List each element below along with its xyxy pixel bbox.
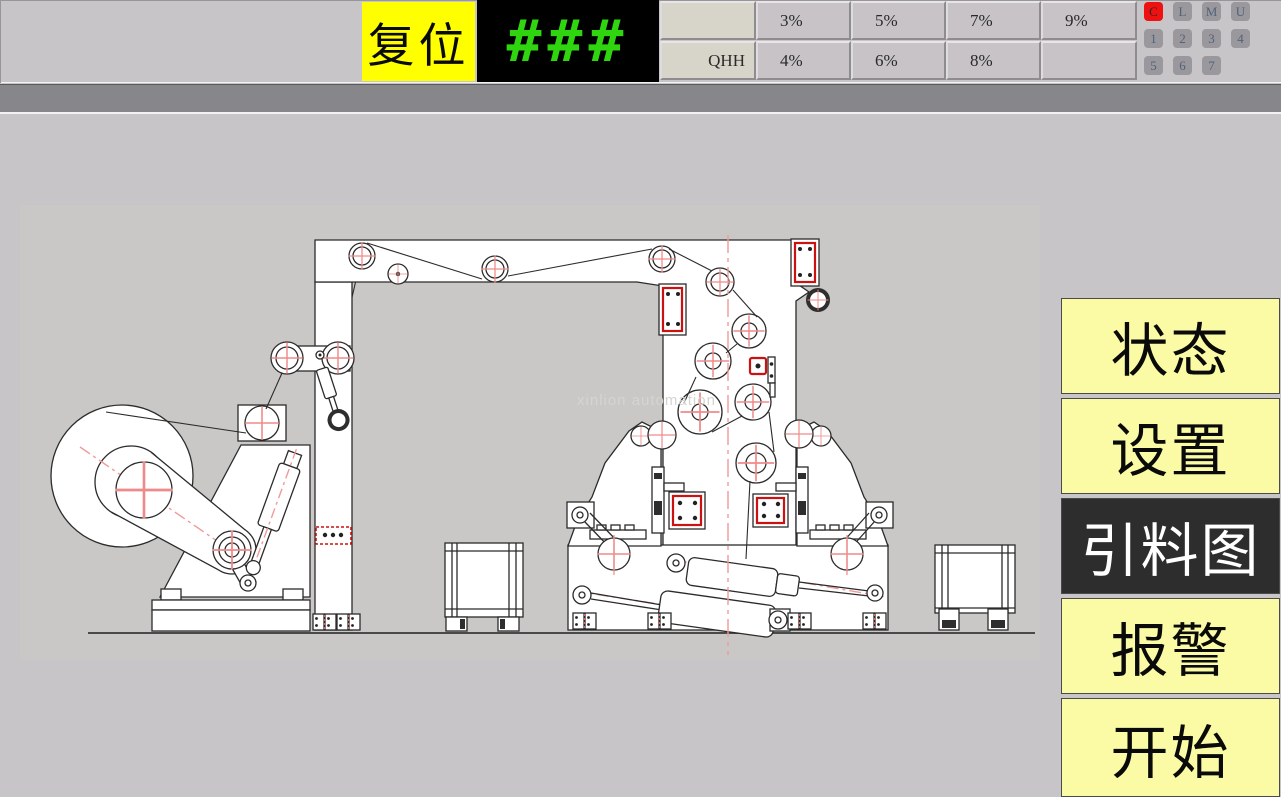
watermark-text: xinlion automation bbox=[577, 392, 716, 409]
grid-cell-9pct[interactable]: 9% bbox=[1041, 1, 1137, 40]
key-u[interactable]: U bbox=[1231, 2, 1250, 21]
grid-cell-qhh[interactable]: QHH bbox=[660, 41, 756, 80]
frame-column bbox=[313, 282, 360, 630]
value-display: ### bbox=[477, 0, 659, 82]
menu-item-start[interactable]: 开始 bbox=[1061, 698, 1280, 797]
key-c[interactable]: C bbox=[1144, 2, 1163, 21]
key-6[interactable]: 6 bbox=[1173, 56, 1192, 75]
grid-cell-8pct[interactable]: 8% bbox=[946, 41, 1041, 80]
top-beam-tower bbox=[315, 240, 809, 546]
menu-item-material-diagram[interactable]: 引料图 bbox=[1061, 498, 1280, 594]
key-l[interactable]: L bbox=[1173, 2, 1192, 21]
pallet-box-left bbox=[445, 543, 523, 631]
grid-cell-4pct[interactable]: 4% bbox=[756, 41, 851, 80]
pallet-box-right bbox=[935, 545, 1015, 630]
key-2[interactable]: 2 bbox=[1173, 29, 1192, 48]
grid-cell[interactable] bbox=[660, 1, 756, 40]
unwind-guide-roller bbox=[238, 405, 286, 441]
hmi-screen: 复位 ### 3% 5% 7% 9% QHH 4% 6% 8% C L M U … bbox=[0, 0, 1281, 797]
reset-button[interactable]: 复位 bbox=[362, 2, 475, 81]
impression-roller bbox=[736, 443, 776, 483]
machine-diagram: xinlion automation bbox=[20, 205, 1040, 660]
key-5[interactable]: 5 bbox=[1144, 56, 1163, 75]
nav-menu: 状态 设置 引料图 报警 开始 bbox=[1061, 298, 1280, 797]
menu-item-settings[interactable]: 设置 bbox=[1061, 398, 1280, 494]
key-7[interactable]: 7 bbox=[1202, 56, 1221, 75]
key-m[interactable]: M bbox=[1202, 2, 1221, 21]
key-3[interactable]: 3 bbox=[1202, 29, 1221, 48]
key-4[interactable]: 4 bbox=[1231, 29, 1250, 48]
grid-cell-6pct[interactable]: 6% bbox=[851, 41, 946, 80]
keypad: C L M U 1 2 3 4 5 6 7 bbox=[1144, 2, 1250, 83]
menu-item-status[interactable]: 状态 bbox=[1061, 298, 1280, 394]
separator-bar bbox=[0, 84, 1281, 112]
grid-cell-7pct[interactable]: 7% bbox=[946, 1, 1041, 40]
grid-cell-5pct[interactable]: 5% bbox=[851, 1, 946, 40]
key-1[interactable]: 1 bbox=[1144, 29, 1163, 48]
grid-cell-3pct[interactable]: 3% bbox=[756, 1, 851, 40]
grid-cell[interactable] bbox=[1041, 41, 1137, 80]
menu-item-alarm[interactable]: 报警 bbox=[1061, 598, 1280, 694]
percent-grid: 3% 5% 7% 9% QHH 4% 6% 8% bbox=[660, 1, 1137, 80]
